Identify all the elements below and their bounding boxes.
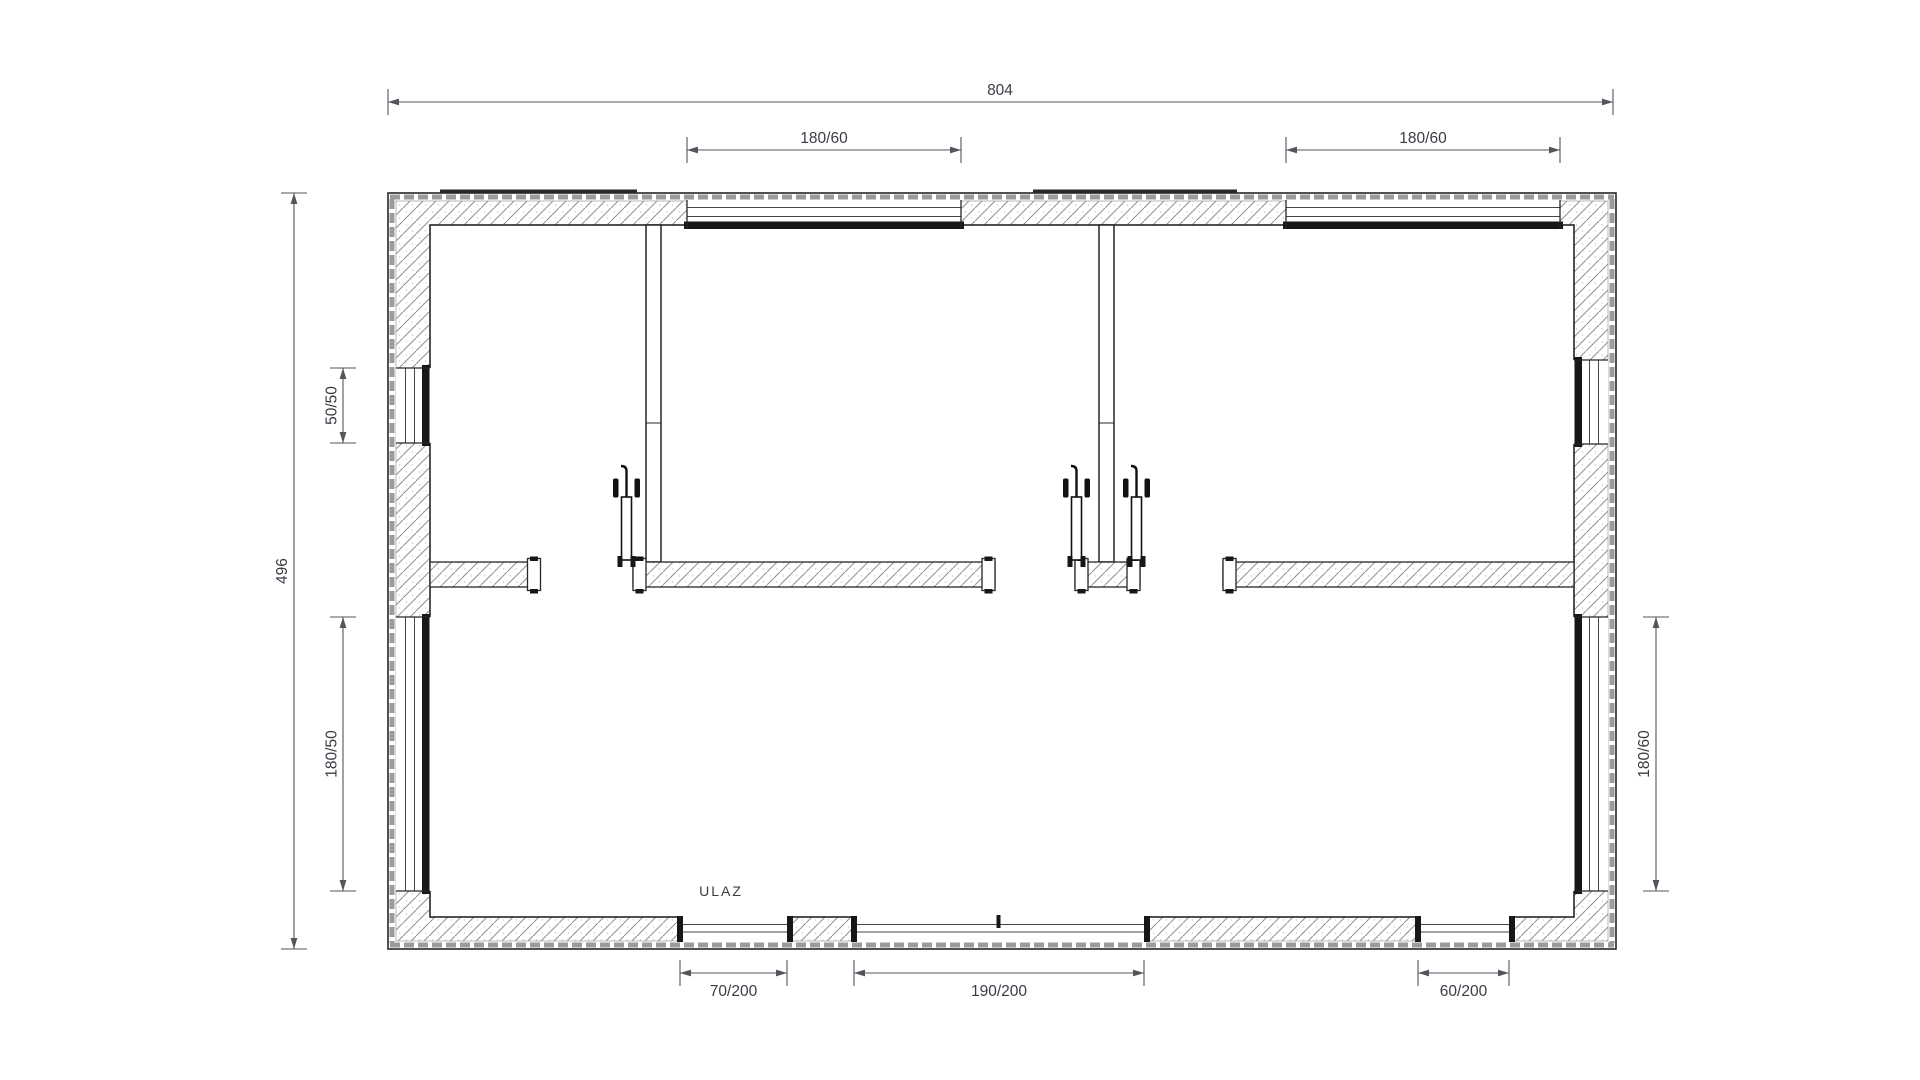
door-handle [1145,479,1151,498]
dim-overall-height: 496 [274,193,307,949]
bottom-door-main [851,915,1150,942]
dim-label-bottom-door-entrance: 70/200 [710,983,758,1000]
door-hinge-block [1128,556,1133,567]
wall-segment [633,562,995,587]
door-leaf [622,497,632,560]
door-jamb [1509,916,1515,942]
interior-door-1 [613,466,640,567]
door-handle [1063,479,1069,498]
door-jamb [787,916,793,942]
door-hinge-block [1081,556,1086,567]
door-hinge-block [618,556,623,567]
door-opening [1418,916,1509,942]
dim-left-window-small: 50/50 [324,368,357,443]
left-window-large [396,614,431,894]
dim-top-window-right: 180/60 [1286,130,1560,163]
interior-wall-horizontal [430,557,1574,594]
floor-plan-canvas: 804 180/60 180/60 496 [0,0,1920,1080]
door-handle [635,479,641,498]
door-hinge-block [1068,556,1073,567]
right-window-large [1573,614,1608,894]
dim-label-left-window-small: 50/50 [324,386,341,425]
door-leaf [1132,497,1142,560]
partition-wall-vertical-1 [646,225,661,562]
door-handle-stem [1071,466,1077,497]
window-sill-line [1283,222,1563,230]
dim-top-window-left: 180/60 [687,130,961,163]
door-hinge-block [631,556,636,567]
dim-bottom-door-small: 60/200 [1418,960,1509,1000]
dim-label-overall-width: 804 [987,82,1013,99]
door-jamb [1415,916,1421,942]
door-handle [1123,479,1129,498]
dim-label-left-window-large: 180/50 [324,730,341,778]
door-handle [613,479,619,498]
door-hinge-block [1141,556,1146,567]
door-jamb [851,916,857,942]
dim-label-top-window-left: 180/60 [800,130,848,147]
dim-label-right-window: 180/60 [1636,730,1653,778]
bottom-door-entrance [677,916,793,942]
door-meeting-stile [997,915,1001,928]
entrance-label: ULAZ [699,883,743,899]
dim-overall-width: 804 [388,82,1613,115]
dim-label-bottom-door-small: 60/200 [1440,983,1488,1000]
dim-left-window-large: 180/50 [324,617,357,891]
dim-bottom-door-entrance: 70/200 [680,960,787,1000]
interior-door-2 [1063,466,1090,567]
interior-door-3 [1123,466,1150,567]
door-jamb [1144,916,1150,942]
left-window-small [396,365,431,446]
window-sill-line [422,365,430,446]
door-handle-stem [621,466,627,497]
dim-right-window: 180/60 [1636,617,1669,891]
dim-label-top-window-right: 180/60 [1399,130,1447,147]
dim-label-overall-height: 496 [274,558,291,584]
wall-segment [1223,562,1574,587]
door-handle [1085,479,1091,498]
right-window-small [1573,357,1608,447]
partition-wall-vertical-2 [1099,225,1114,562]
top-window-left [684,200,964,231]
window-sill-line [1575,357,1583,447]
top-window-right [1283,200,1563,231]
partition-body [1099,225,1114,562]
door-leaf [1072,497,1082,560]
door-handle-stem [1131,466,1137,497]
window-sill-line [684,222,964,230]
door-jamb [677,916,683,942]
window-sill-line [1575,614,1583,894]
window-sill-line [422,614,430,894]
floor-plan-page: 804 180/60 180/60 496 [0,0,1920,1080]
bottom-door-small [1415,916,1515,942]
partition-body [646,225,661,562]
dim-label-bottom-door-main: 190/200 [971,983,1027,1000]
wall-segment [430,562,540,587]
dim-bottom-door-main: 190/200 [854,960,1144,1000]
door-opening [680,916,787,942]
